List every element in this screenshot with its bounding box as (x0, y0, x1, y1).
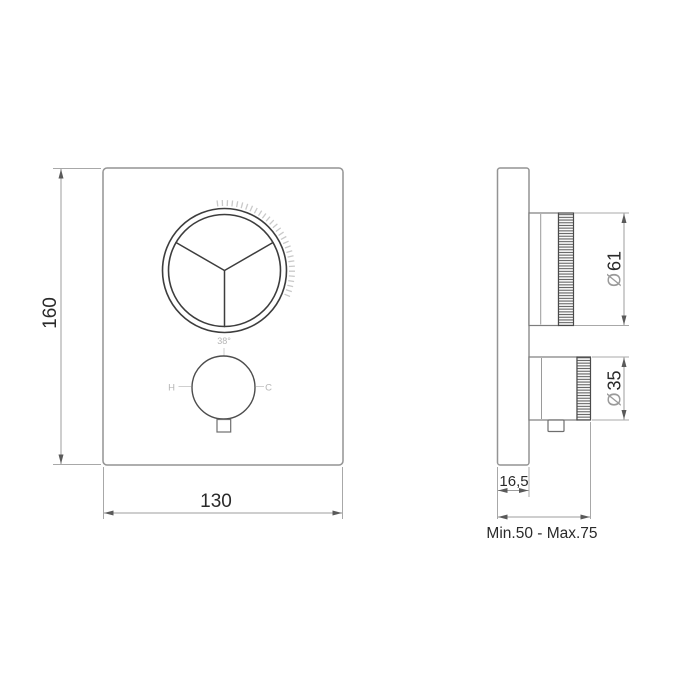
dial-tick (288, 261, 294, 262)
temp-knob-tab-profile (548, 420, 564, 432)
temp-knob-cold-label: C (265, 383, 272, 394)
install-depth-label: Min.50 - Max.75 (486, 525, 597, 542)
temp-dia-label-group: Ø 35 (605, 370, 625, 406)
technical-drawing-page: 38° H C 160 130 (0, 0, 700, 700)
temp-knob-temp-label: 38° (217, 336, 231, 346)
temp-knob-knurl-band (577, 357, 591, 420)
diverter-knob-body-profile (529, 213, 559, 326)
side-plate-profile (498, 168, 530, 465)
diverter-knob-knurl-band (559, 213, 574, 326)
height-dimension-label: 160 (40, 297, 61, 329)
dial-tick (288, 281, 294, 282)
temp-dia-value: 35 (605, 370, 625, 390)
front-view: 38° H C 160 130 (40, 168, 343, 519)
depth-dimension-label: 16,5 (499, 473, 528, 490)
side-view: Ø 61 Ø 35 16,5 Min.50 - Max.75 (486, 168, 629, 542)
height-dimension-label-group: 160 (40, 297, 61, 329)
temp-dia-symbol: Ø (605, 392, 625, 406)
diverter-dia-value: 61 (605, 251, 625, 271)
width-dimension-label: 130 (200, 491, 232, 512)
dial-tick (289, 276, 295, 277)
diverter-dia-label-group: Ø 61 (605, 251, 625, 287)
temp-knob-tab (217, 420, 231, 433)
temp-knob (192, 356, 255, 419)
dial-tick (232, 201, 233, 207)
shower-mixer-dimension-drawing: 38° H C 160 130 (0, 0, 700, 700)
temp-knob-body-profile (529, 357, 577, 420)
temp-knob-hot-label: H (168, 383, 175, 394)
diverter-dia-symbol: Ø (605, 273, 625, 287)
dial-tick (217, 200, 218, 206)
